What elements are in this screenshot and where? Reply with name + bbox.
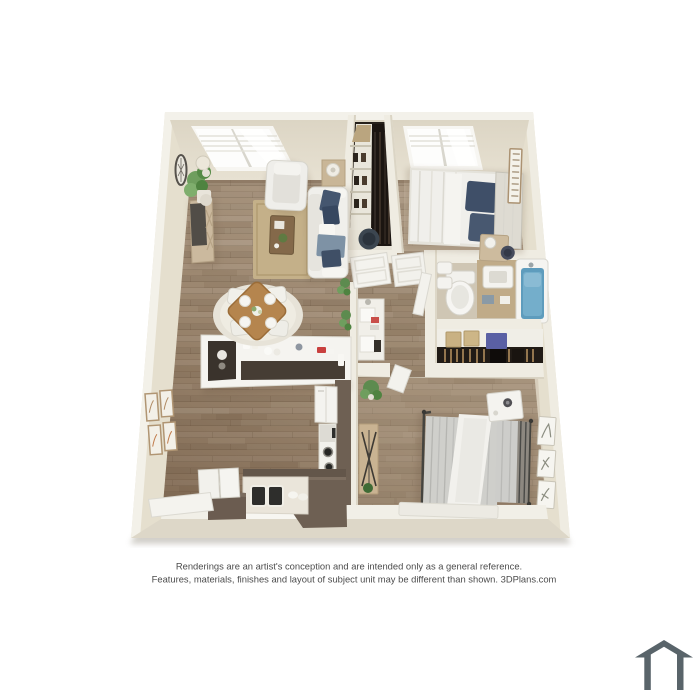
svg-text:Renderings are an artist's con: Renderings are an artist's conception an… [176,561,522,572]
svg-text:Features, materials, finishes: Features, materials, finishes and layout… [152,574,557,585]
